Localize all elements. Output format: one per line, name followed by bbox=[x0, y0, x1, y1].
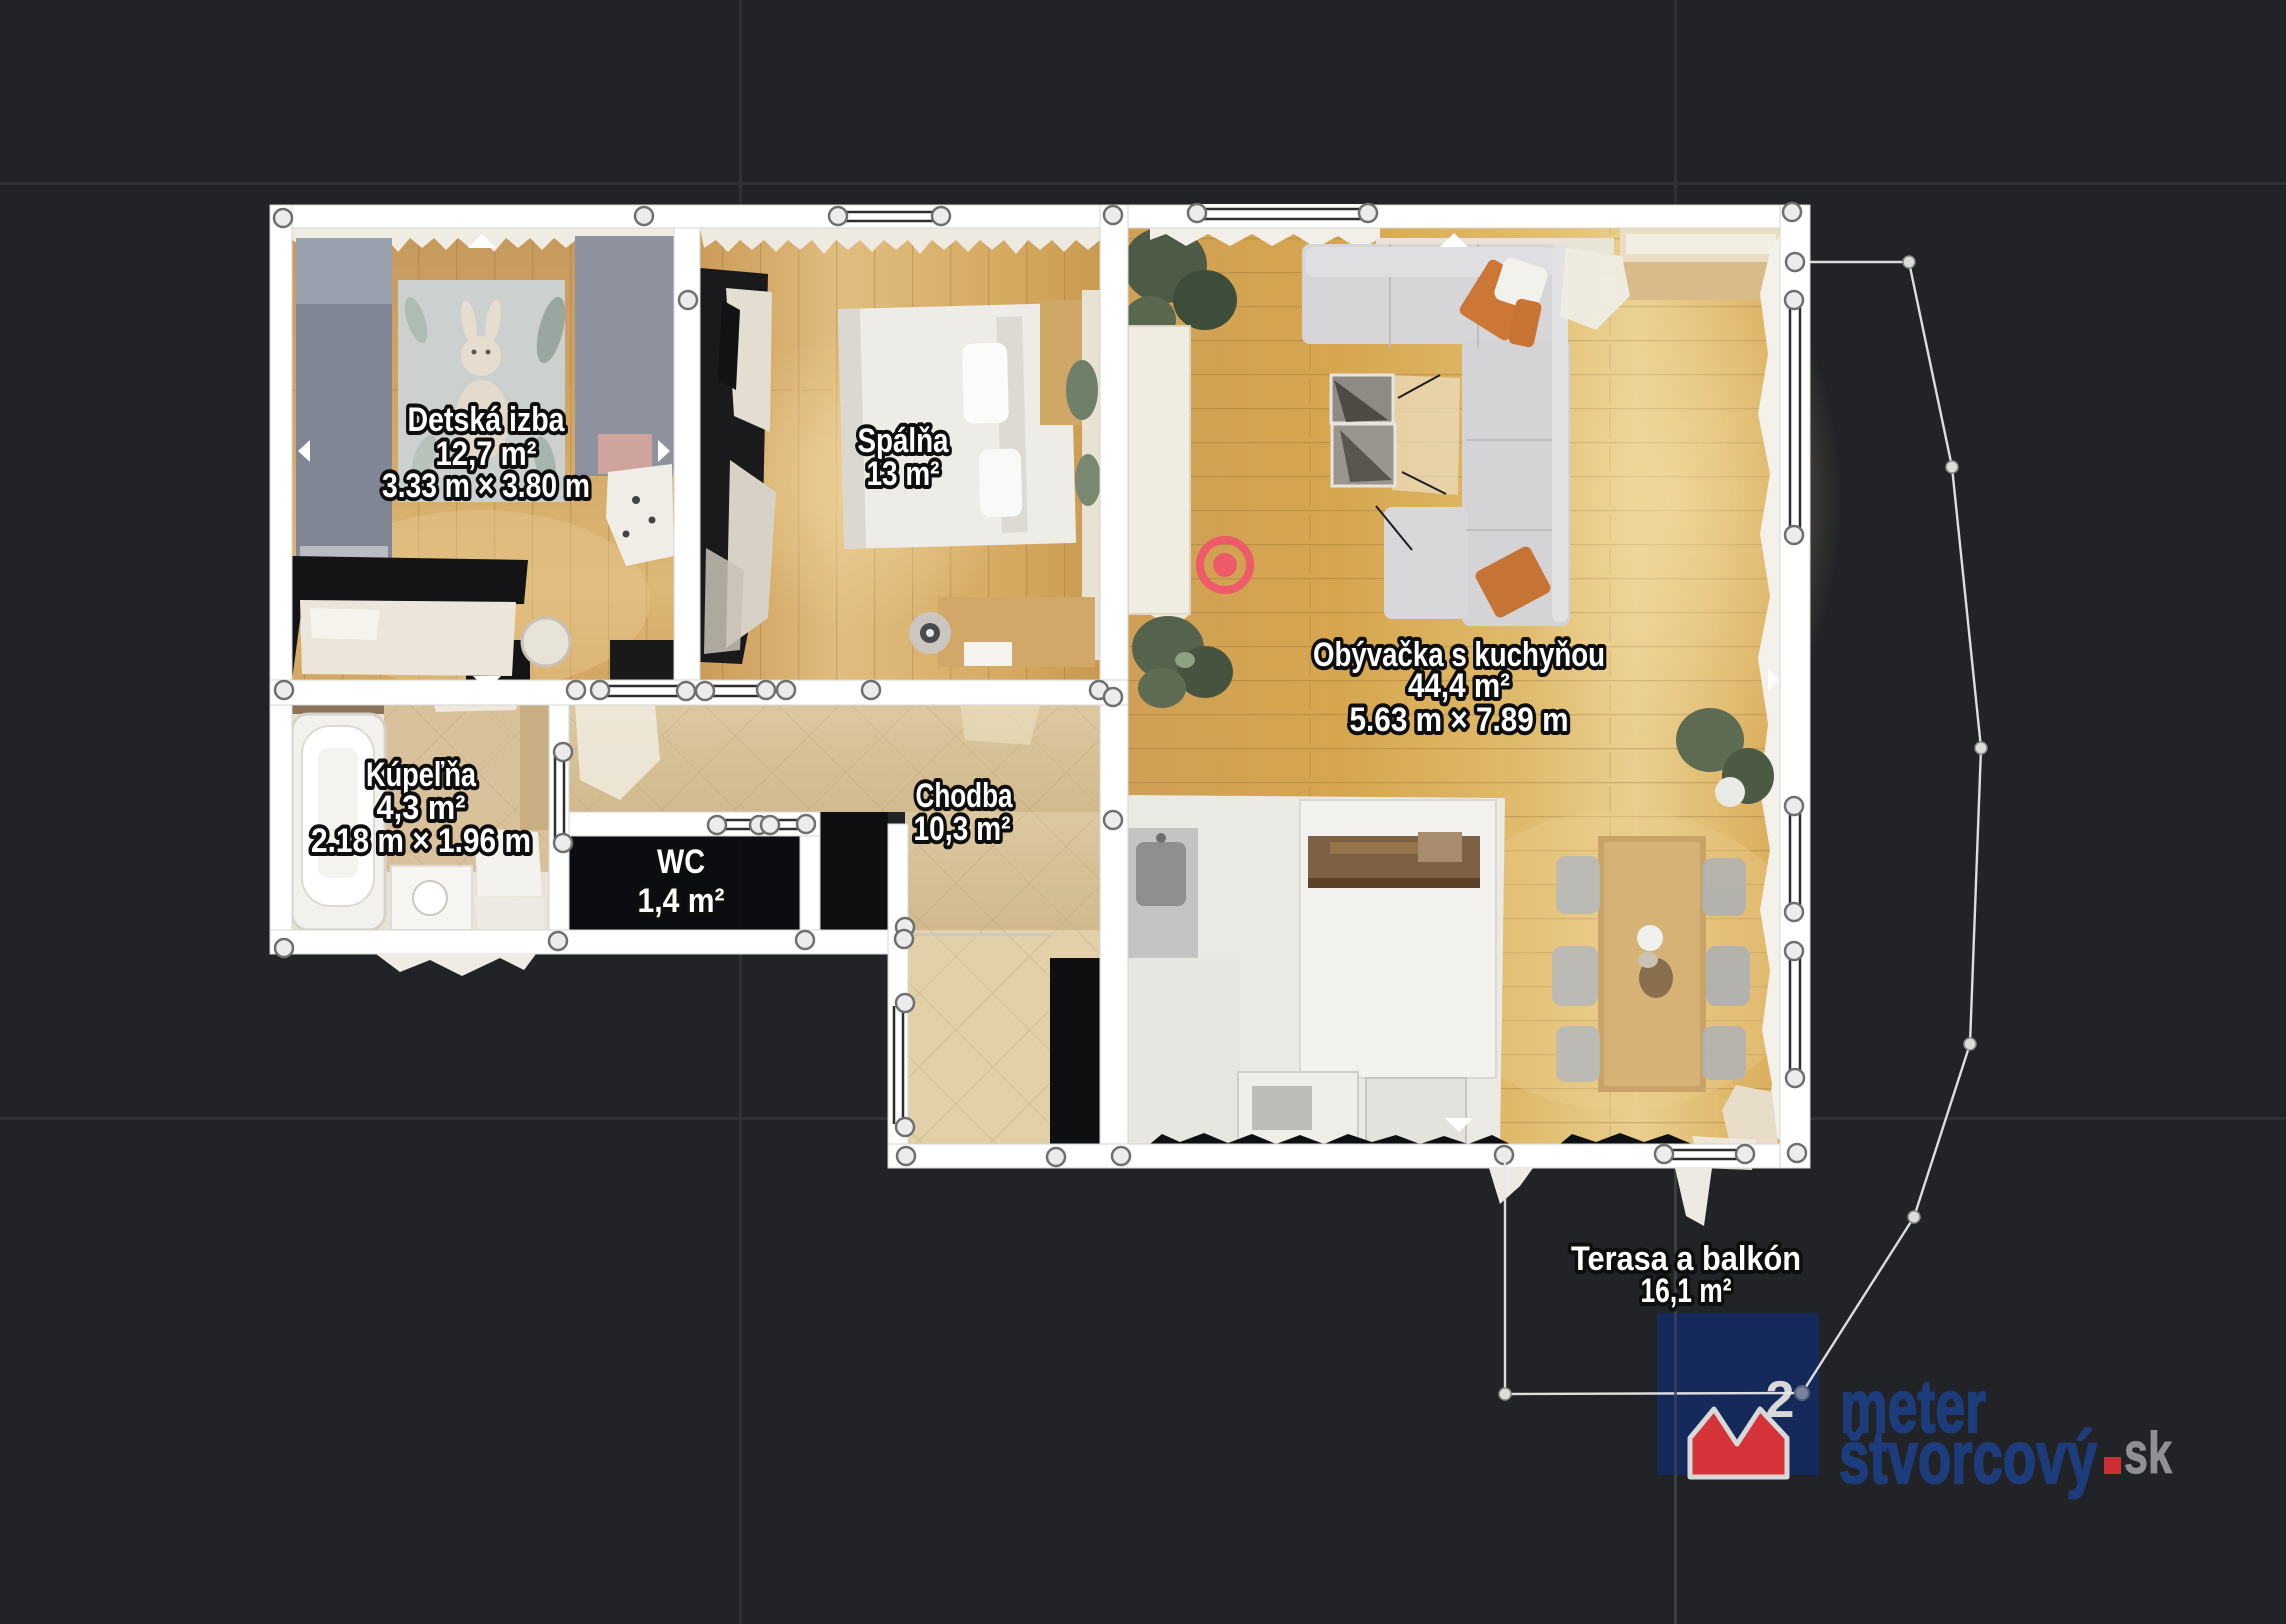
svg-text:10,3 m²: 10,3 m² bbox=[914, 810, 1011, 848]
svg-text:štvorcový: štvorcový bbox=[1839, 1416, 2097, 1499]
svg-text:2: 2 bbox=[1766, 1371, 1795, 1429]
svg-text:Detská izba: Detská izba bbox=[408, 401, 566, 439]
svg-text:2.18 m × 1.96 m: 2.18 m × 1.96 m bbox=[311, 822, 531, 860]
svg-text:sk: sk bbox=[2124, 1421, 2173, 1486]
svg-text:1,4 m²: 1,4 m² bbox=[638, 882, 725, 920]
svg-text:5.63 m × 7.89 m: 5.63 m × 7.89 m bbox=[1350, 701, 1569, 739]
svg-text:3.33 m × 3.80 m: 3.33 m × 3.80 m bbox=[382, 467, 590, 505]
svg-text:16,1 m²: 16,1 m² bbox=[1641, 1272, 1732, 1310]
svg-text:WC: WC bbox=[657, 843, 705, 881]
svg-text:44,4 m²: 44,4 m² bbox=[1408, 667, 1510, 705]
svg-text:13 m²: 13 m² bbox=[867, 455, 940, 493]
